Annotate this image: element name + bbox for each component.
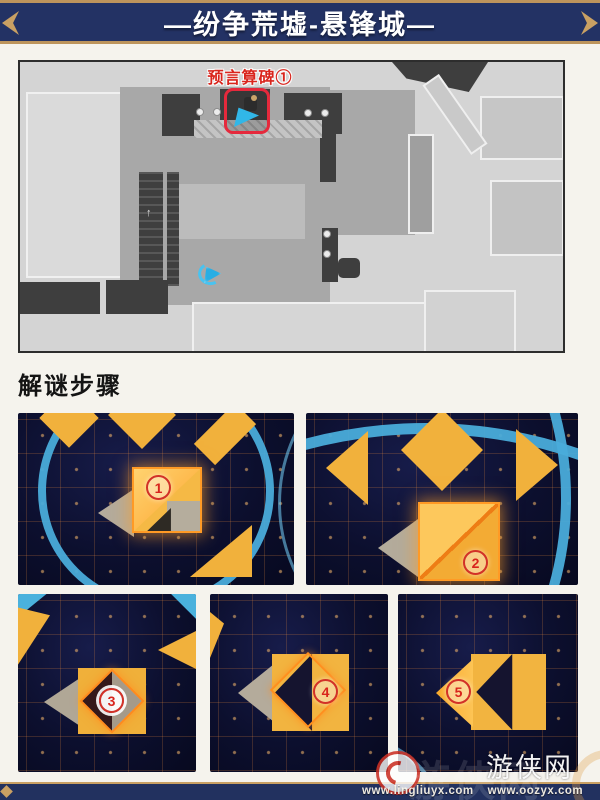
map-door-pin [323, 230, 331, 238]
map-stairs [139, 172, 163, 286]
map-door-pin [196, 108, 204, 116]
puzzle-shape [167, 501, 200, 531]
map-door-pin [213, 108, 221, 116]
map-hall [175, 184, 305, 239]
header-chevron-right-icon [581, 11, 598, 35]
map-corridor [320, 134, 336, 182]
page-title: —纷争荒墟-悬锋城— [164, 3, 436, 42]
map-outlined-room [480, 96, 564, 160]
guide-page: —纷争荒墟-悬锋城— ↑ [0, 0, 600, 800]
map-open-area [26, 92, 132, 278]
poi-figure-head [251, 95, 257, 101]
map-outlined-room [490, 180, 564, 256]
watermark-site-text: 游侠网 [486, 746, 573, 785]
map-room [106, 280, 168, 314]
puzzle-step-image-2: 2 [306, 413, 578, 585]
step-number-badge: 4 [313, 679, 338, 704]
watermark-urls: www.lingliuyx.comwww.oozyx.com [362, 785, 597, 797]
watermark-url: www.lingliuyx.com [362, 785, 474, 797]
highlighted-tile [471, 654, 546, 730]
section-heading: 解谜步骤 [18, 366, 122, 401]
highlighted-tile [418, 502, 500, 581]
map-up-arrow-icon: ↑ [146, 207, 152, 219]
map-open-area [192, 302, 428, 353]
step-number-badge: 3 [99, 688, 124, 713]
map-door-pin [323, 250, 331, 258]
map-stairs [167, 172, 179, 286]
watermark-url: www.oozyx.com [488, 785, 584, 797]
header-chevron-left-icon [2, 11, 19, 35]
puzzle-step-image-3: 3 [18, 594, 196, 772]
map-panel: ↑ 预言算碑① [18, 60, 565, 353]
map-open-area [424, 290, 516, 353]
map-door-pin [304, 109, 312, 117]
step-number-badge: 1 [146, 475, 171, 500]
header-banner: —纷争荒墟-悬锋城— [0, 0, 600, 44]
highlighted-tile [132, 467, 202, 533]
player-marker-icon [198, 260, 228, 290]
step-number-badge: 2 [463, 550, 488, 575]
poi-marker-box [224, 88, 270, 134]
map-room [20, 282, 100, 314]
map-corridor [408, 134, 434, 234]
map-room [338, 258, 360, 278]
poi-label: 预言算碑① [170, 64, 330, 88]
puzzle-shape [471, 654, 546, 730]
puzzle-step-image-1: 1 [18, 413, 294, 585]
map-door-pin [321, 109, 329, 117]
step-number-badge: 5 [446, 679, 471, 704]
puzzle-step-image-4: 4 [210, 594, 388, 772]
